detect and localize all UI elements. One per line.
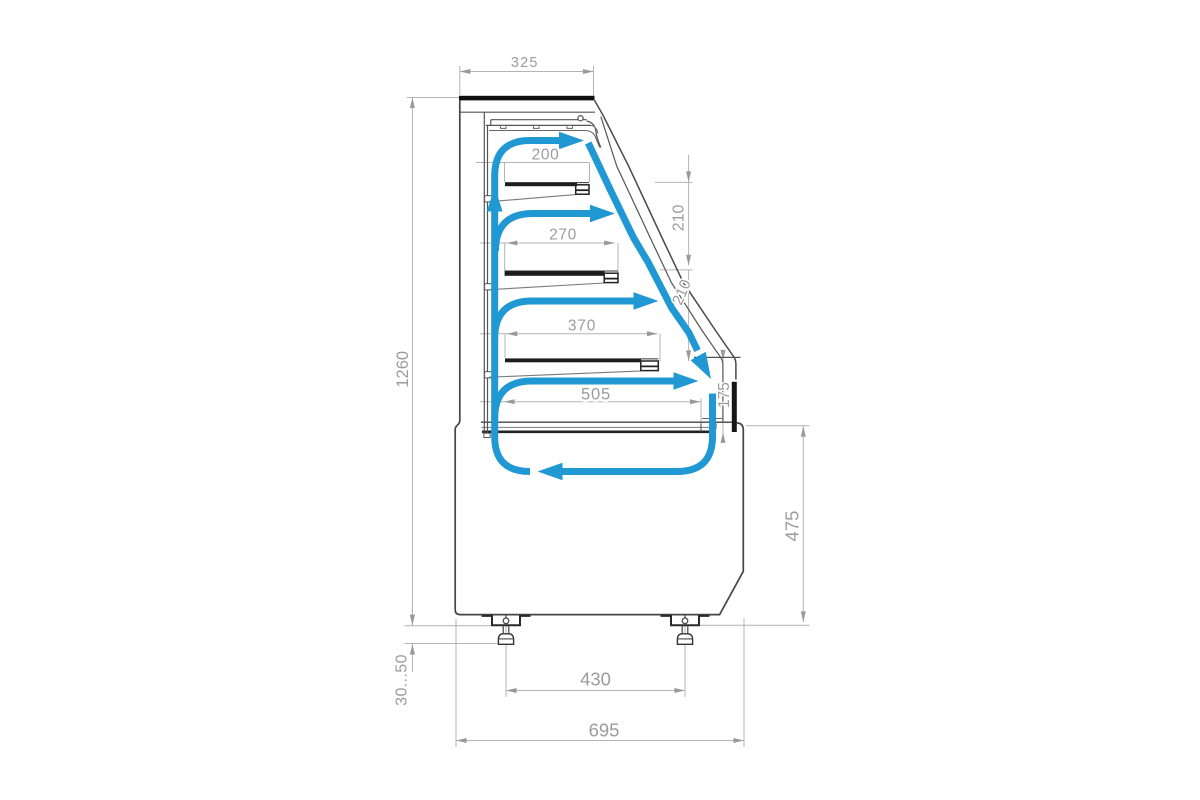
svg-text:430: 430	[580, 669, 611, 690]
svg-text:695: 695	[589, 720, 620, 741]
svg-text:175: 175	[716, 382, 733, 408]
svg-text:210: 210	[671, 204, 688, 231]
svg-text:370: 370	[568, 318, 596, 335]
svg-text:270: 270	[549, 227, 577, 244]
svg-text:475: 475	[782, 511, 803, 542]
svg-text:1260: 1260	[394, 351, 412, 388]
svg-text:200: 200	[532, 147, 560, 164]
svg-text:325: 325	[511, 55, 539, 71]
svg-text:30...50: 30...50	[394, 654, 411, 706]
svg-text:505: 505	[581, 386, 611, 404]
